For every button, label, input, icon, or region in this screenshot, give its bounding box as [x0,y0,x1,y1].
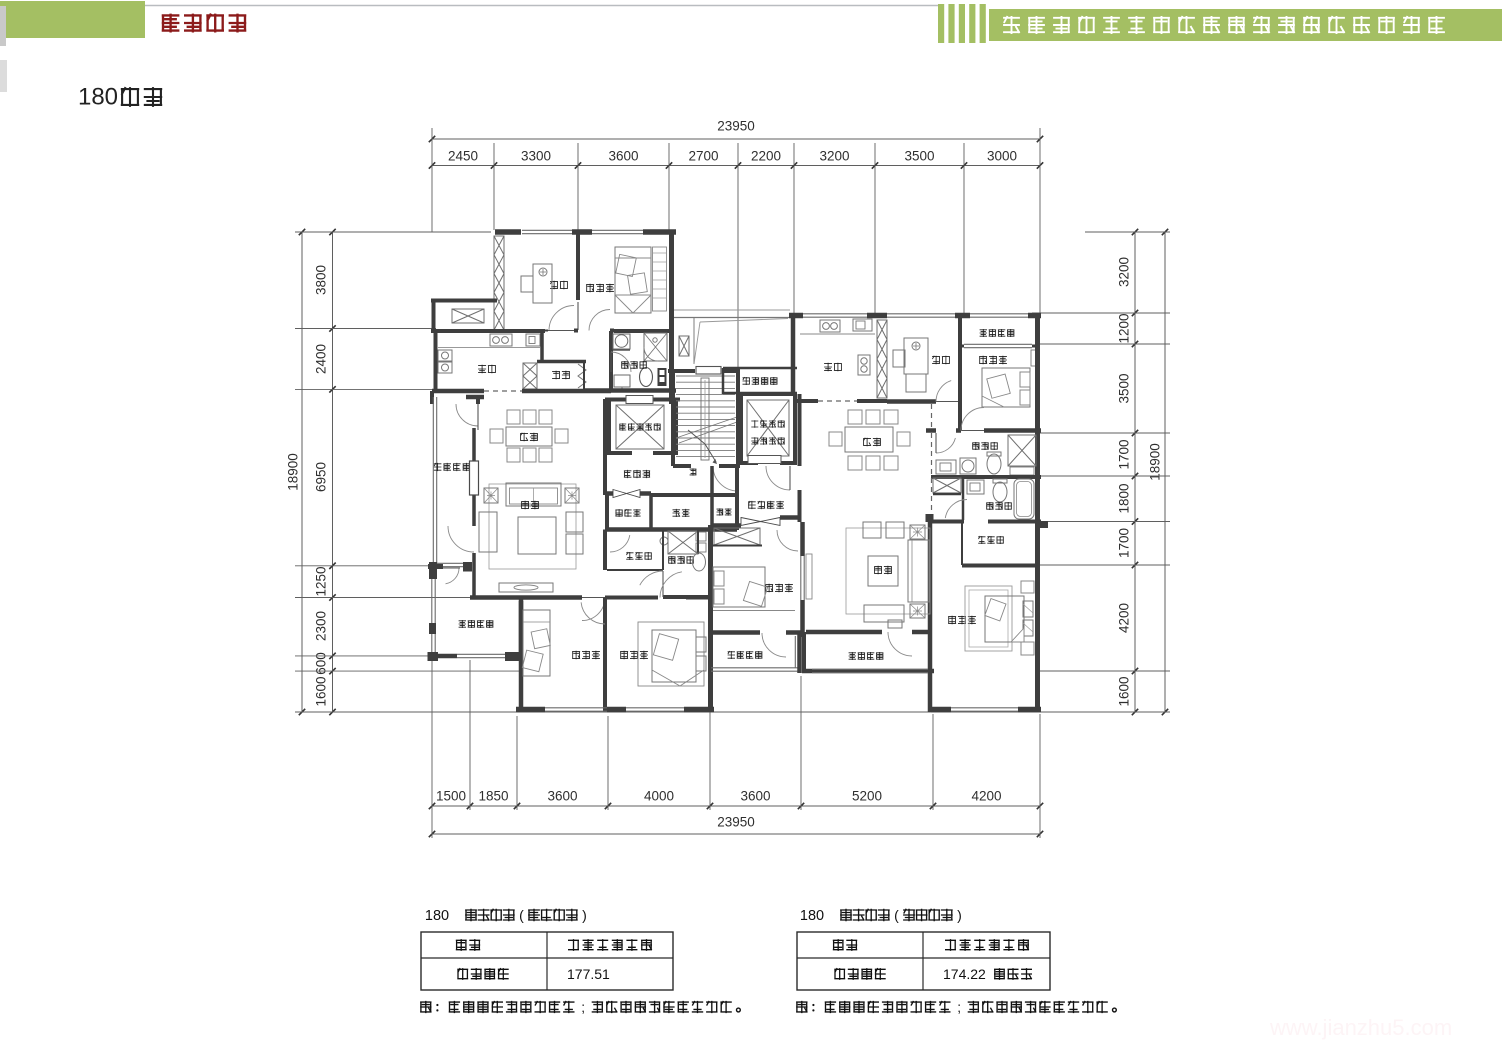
svg-text:(: ( [519,907,524,923]
svg-text:3800: 3800 [314,265,329,295]
svg-text:1600: 1600 [314,676,329,706]
svg-text:1850: 1850 [478,789,508,804]
svg-text:1600: 1600 [1117,676,1132,706]
svg-text:23950: 23950 [717,815,755,830]
svg-text:18900: 18900 [1148,443,1163,481]
svg-text:180: 180 [800,908,824,924]
svg-text:3600: 3600 [608,149,638,164]
svg-text:2300: 2300 [314,611,329,641]
svg-text:1700: 1700 [1117,439,1132,469]
svg-text:2450: 2450 [448,149,478,164]
svg-text:3200: 3200 [1117,257,1132,287]
svg-text:3500: 3500 [904,149,934,164]
svg-text:4000: 4000 [644,789,674,804]
svg-text:;: ; [957,1000,961,1015]
svg-text:2700: 2700 [688,149,718,164]
svg-text:3200: 3200 [819,149,849,164]
svg-text:1250: 1250 [314,566,329,596]
svg-text:1700: 1700 [1117,528,1132,558]
svg-text:174.22: 174.22 [943,966,986,982]
svg-text:3500: 3500 [1117,373,1132,403]
svg-text:1200: 1200 [1117,313,1132,343]
svg-text:6950: 6950 [314,462,329,492]
svg-text:): ) [582,907,587,923]
svg-text:3600: 3600 [740,789,770,804]
svg-text:180: 180 [425,908,449,924]
svg-text:(: ( [894,907,899,923]
svg-text:3000: 3000 [987,149,1017,164]
svg-text:4200: 4200 [971,789,1001,804]
svg-text:1800: 1800 [1117,483,1132,513]
svg-text:1500: 1500 [436,789,466,804]
svg-text:): ) [957,907,962,923]
svg-text:177.51: 177.51 [567,966,610,982]
svg-text:18900: 18900 [286,453,301,491]
svg-text:2200: 2200 [751,149,781,164]
svg-text:www.jianzhu5.com: www.jianzhu5.com [1269,1015,1452,1040]
svg-text:5200: 5200 [852,789,882,804]
svg-text:3300: 3300 [521,149,551,164]
svg-text:23950: 23950 [717,119,755,134]
svg-text:180: 180 [78,83,118,110]
svg-text:3600: 3600 [547,789,577,804]
svg-text:4200: 4200 [1117,603,1132,633]
svg-text:;: ; [581,1000,585,1015]
svg-text:2400: 2400 [314,344,329,374]
